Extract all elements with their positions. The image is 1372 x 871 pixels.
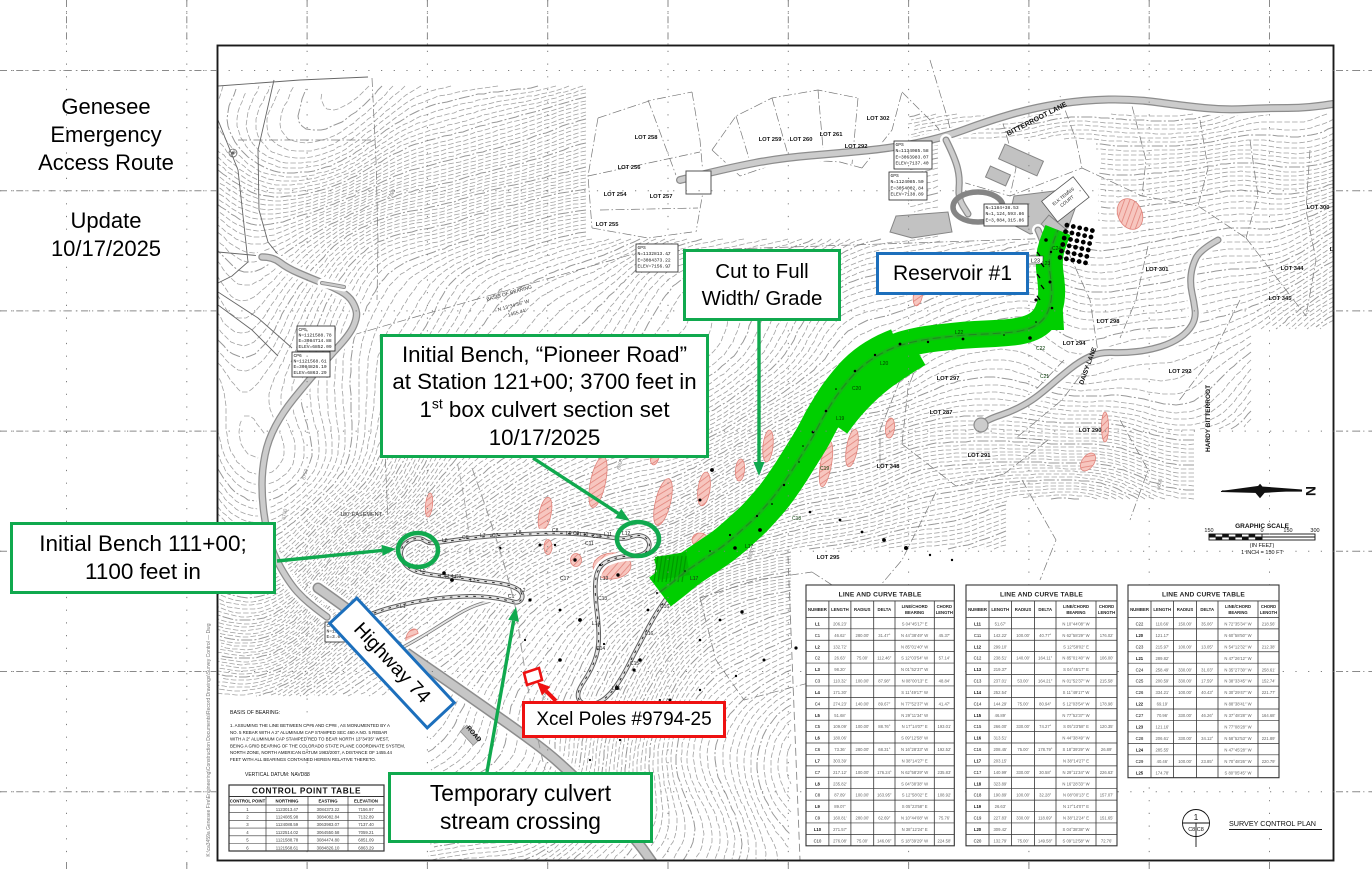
- svg-text:203.15′: 203.15′: [993, 758, 1007, 763]
- svg-text:13.05°: 13.05°: [1201, 644, 1213, 649]
- svg-text:C3: C3: [815, 679, 821, 684]
- svg-text:200.59′: 200.59′: [1155, 679, 1169, 684]
- svg-text:190.89′: 190.89′: [993, 793, 1007, 798]
- svg-text:S 18°39′29″ W: S 18°39′29″ W: [901, 838, 928, 843]
- svg-text:C14: C14: [974, 701, 982, 706]
- svg-text:NORTH ZONE, NORTH AMERICAN DAT: NORTH ZONE, NORTH AMERICAN DATUM 1983/20…: [230, 750, 392, 755]
- svg-text:N 16°28′33″ W: N 16°28′33″ W: [1062, 781, 1089, 786]
- svg-text:1122514.02: 1122514.02: [276, 830, 299, 835]
- svg-text:75.00′: 75.00′: [1017, 838, 1028, 843]
- svg-text:221.77′: 221.77′: [1262, 690, 1276, 695]
- svg-text:BEING A GRID BEARING OF THE CO: BEING A GRID BEARING OF THE COLORADO STA…: [230, 743, 405, 748]
- svg-text:45.37′: 45.37′: [939, 633, 950, 638]
- svg-text:L17: L17: [974, 758, 982, 763]
- svg-text:3084826.10: 3084826.10: [317, 845, 340, 850]
- svg-text:L16: L16: [974, 736, 982, 741]
- svg-text:HARDY BITTERROOT: HARDY BITTERROOT: [1205, 385, 1212, 452]
- svg-text:C4 L4 C3: C4 L4 C3: [440, 574, 461, 580]
- svg-text:C24: C24: [1052, 246, 1061, 252]
- svg-text:46.89′: 46.89′: [995, 713, 1006, 718]
- svg-text:N=1,124,593.86: N=1,124,593.86: [986, 211, 1025, 217]
- svg-text:N 17°14′07″ E: N 17°14′07″ E: [1063, 804, 1089, 809]
- svg-text:CHORD: CHORD: [1099, 604, 1114, 609]
- svg-text:C11: C11: [974, 633, 982, 638]
- svg-text:178.96′: 178.96′: [1100, 701, 1114, 706]
- svg-text:L22: L22: [955, 330, 964, 336]
- svg-text:C6: C6: [462, 535, 469, 541]
- svg-text:CONTROL POINT TABLE: CONTROL POINT TABLE: [252, 786, 361, 796]
- svg-text:87.89′: 87.89′: [834, 793, 845, 798]
- svg-text:87.98°: 87.98°: [878, 679, 890, 684]
- svg-text:L13: L13: [974, 667, 982, 672]
- svg-text:274.23′: 274.23′: [833, 701, 847, 706]
- svg-text:GPS: GPS: [896, 142, 905, 148]
- svg-text:C13: C13: [974, 679, 982, 684]
- svg-text:100.00′: 100.00′: [856, 793, 870, 798]
- svg-text:BEARING: BEARING: [1066, 610, 1085, 615]
- svg-text:51.67′: 51.67′: [995, 621, 1006, 626]
- svg-text:ELEV=7137.40: ELEV=7137.40: [896, 161, 929, 167]
- svg-text:L23: L23: [1136, 725, 1144, 730]
- svg-text:L9: L9: [815, 804, 821, 809]
- svg-text:L8: L8: [815, 781, 821, 786]
- svg-text:140.00′: 140.00′: [1016, 656, 1030, 661]
- svg-text:C15: C15: [630, 661, 639, 667]
- svg-text:C11: C11: [585, 541, 594, 547]
- svg-text:276.08′: 276.08′: [833, 838, 847, 843]
- svg-text:75.00′: 75.00′: [857, 656, 868, 661]
- svg-text:219.37′: 219.37′: [993, 667, 1007, 672]
- svg-text:LINE AND CURVE TABLE: LINE AND CURVE TABLE: [1162, 591, 1245, 598]
- svg-text:221.89′: 221.89′: [1262, 736, 1276, 741]
- svg-text:ELEV=7138.89: ELEV=7138.89: [891, 192, 924, 198]
- svg-text:BEARING: BEARING: [1228, 610, 1247, 615]
- svg-text:C17: C17: [560, 576, 569, 582]
- svg-text:110.66′: 110.66′: [1156, 621, 1169, 626]
- svg-text:C10: C10: [814, 838, 822, 843]
- svg-text:ELEV=7156.97: ELEV=7156.97: [638, 264, 671, 270]
- svg-text:VERTICAL DATUM: NAVD88: VERTICAL DATUM: NAVD88: [245, 772, 310, 778]
- svg-text:3084373.22: 3084373.22: [317, 807, 340, 812]
- svg-text:S 12°03′54″ W: S 12°03′54″ W: [1063, 701, 1090, 706]
- svg-text:26.63′: 26.63′: [995, 804, 1006, 809]
- svg-text:174.78′: 174.78′: [1155, 770, 1169, 775]
- svg-text:LOT 344: LOT 344: [1281, 266, 1305, 272]
- svg-text:LENGTH: LENGTH: [1098, 610, 1115, 615]
- svg-text:N 38°33′45″ W: N 38°33′45″ W: [1224, 679, 1251, 684]
- svg-text:LENGTH: LENGTH: [1260, 610, 1277, 615]
- svg-text:46.62′: 46.62′: [834, 633, 845, 638]
- svg-text:C6: C6: [815, 747, 821, 752]
- svg-text:N 17°14′07″ E: N 17°14′07″ E: [902, 724, 928, 729]
- svg-text:S 05°23′58″ E: S 05°23′58″ E: [1063, 724, 1089, 729]
- svg-text:51.68′: 51.68′: [834, 713, 845, 718]
- svg-text:S 11°49′17″ W: S 11°49′17″ W: [901, 690, 928, 695]
- svg-text:100.00′: 100.00′: [1178, 644, 1192, 649]
- svg-text:LOT 258: LOT 258: [635, 135, 659, 141]
- svg-text:100.00′: 100.00′: [856, 770, 870, 775]
- svg-text:150: 150: [1204, 528, 1213, 534]
- svg-text:K:\ca3459a Genesee Fire\Engine: K:\ca3459a Genesee Fire\Engineering\Cons…: [206, 623, 212, 856]
- svg-text:80.94°: 80.94°: [1039, 701, 1051, 706]
- svg-text:S 12°03′54″ W: S 12°03′54″ W: [901, 656, 928, 661]
- svg-text:6851.09: 6851.09: [358, 838, 374, 843]
- svg-text:171.30′: 171.30′: [833, 690, 847, 695]
- svg-text:WITH A 2″ ALUMINUM CAP STAMPED: WITH A 2″ ALUMINUM CAP STAMPED RED TO BE…: [230, 737, 389, 742]
- svg-text:235.83′: 235.83′: [938, 770, 952, 775]
- svg-text:7132.89: 7132.89: [358, 815, 374, 820]
- svg-text:LINE/CHORD: LINE/CHORD: [1225, 604, 1251, 609]
- svg-text:109.09′: 109.09′: [833, 724, 847, 729]
- svg-text:E=3084826.10: E=3084826.10: [294, 364, 327, 370]
- svg-text:LENGTH: LENGTH: [936, 610, 953, 615]
- svg-text:C16: C16: [974, 747, 982, 752]
- svg-text:N 37°48′28″ W: N 37°48′28″ W: [1224, 713, 1251, 718]
- svg-text:C28: C28: [1136, 736, 1144, 741]
- svg-text:CHORD: CHORD: [937, 604, 952, 609]
- svg-text:70.96′: 70.96′: [1157, 713, 1168, 718]
- svg-text:192.52′: 192.52′: [938, 747, 952, 752]
- svg-text:N 30°29′47″ W: N 30°29′47″ W: [1224, 690, 1251, 695]
- svg-text:N 62°58′29″ W: N 62°58′29″ W: [901, 770, 928, 775]
- svg-text:L14: L14: [592, 621, 601, 627]
- svg-text:DELTA: DELTA: [878, 607, 892, 612]
- svg-text:3084082.84: 3084082.84: [317, 815, 340, 820]
- svg-text:C7: C7: [815, 770, 821, 775]
- svg-text:N 44°38′49″ W: N 44°38′49″ W: [1062, 736, 1089, 741]
- svg-text:7137.40: 7137.40: [358, 822, 374, 827]
- svg-text:L17: L17: [745, 544, 754, 550]
- svg-text:C2: C2: [815, 656, 821, 661]
- svg-text:C18: C18: [792, 516, 801, 522]
- svg-text:LOT 300: LOT 300: [1307, 205, 1330, 211]
- svg-text:C9: C9: [815, 816, 821, 821]
- svg-text:C24: C24: [1136, 667, 1144, 672]
- svg-text:N 35°27′30″ W: N 35°27′30″ W: [1224, 667, 1251, 672]
- svg-text:280.00′: 280.00′: [856, 816, 870, 821]
- svg-text:330.00′: 330.00′: [1178, 736, 1192, 741]
- svg-text:L3: L3: [815, 667, 821, 672]
- svg-text:157.07′: 157.07′: [1100, 793, 1114, 798]
- svg-text:218.56′: 218.56′: [1262, 621, 1276, 626]
- svg-text:S 09°12′58″ W: S 09°12′58″ W: [1063, 838, 1090, 843]
- svg-text:100.00′: 100.00′: [1178, 690, 1192, 695]
- svg-text:E=3084714.88: E=3084714.88: [299, 338, 332, 344]
- svg-text:72.76′: 72.76′: [1101, 838, 1112, 843]
- svg-text:3063983.07: 3063983.07: [317, 822, 340, 827]
- svg-text:280.00′: 280.00′: [856, 633, 870, 638]
- svg-text:L19: L19: [836, 416, 845, 422]
- svg-text:L4: L4: [815, 690, 821, 695]
- svg-text:NORTHING: NORTHING: [276, 799, 300, 804]
- svg-text:75.00′: 75.00′: [1017, 747, 1028, 752]
- svg-text:160.81′: 160.81′: [833, 816, 847, 821]
- svg-text:L5: L5: [815, 713, 821, 718]
- svg-text:L24: L24: [1136, 747, 1144, 752]
- svg-text:98.20′: 98.20′: [834, 667, 845, 672]
- svg-text:151.65′: 151.65′: [1100, 816, 1114, 821]
- svg-text:1. ASSUMING THE LINE BETWEE: 1. ASSUMING THE LINE BETWEEN CP#6 AND CP…: [230, 723, 390, 728]
- svg-text:C8: C8: [552, 528, 559, 534]
- svg-text:N 77°08′28″ W: N 77°08′28″ W: [1224, 725, 1251, 730]
- svg-text:N 62°58′29″ W: N 62°58′29″ W: [1062, 633, 1089, 638]
- svg-text:E=3063983.07: E=3063983.07: [896, 154, 929, 160]
- svg-text:N=1132813.47: N=1132813.47: [638, 251, 671, 257]
- svg-text:100.00′: 100.00′: [856, 679, 870, 684]
- svg-text:35.06°: 35.06°: [1201, 621, 1213, 626]
- svg-text:S 12°58′02″ E: S 12°58′02″ E: [1063, 644, 1089, 649]
- svg-text:DELTA: DELTA: [1200, 607, 1214, 612]
- svg-text:142.22′: 142.22′: [993, 633, 1007, 638]
- svg-text:140.99′: 140.99′: [993, 770, 1007, 775]
- svg-text:LINE AND CURVE TABLE: LINE AND CURVE TABLE: [839, 591, 922, 598]
- svg-text:285.55′: 285.55′: [1155, 747, 1169, 752]
- svg-text:41.47′: 41.47′: [939, 701, 950, 706]
- svg-text:L18: L18: [974, 781, 982, 786]
- svg-text:330.00′: 330.00′: [1178, 679, 1192, 684]
- svg-text:LOT 254: LOT 254: [604, 192, 628, 198]
- svg-text:C22: C22: [1036, 346, 1045, 352]
- svg-text:N 44°38′49″ W: N 44°38′49″ W: [901, 633, 928, 638]
- svg-text:121.16′: 121.16′: [1155, 725, 1169, 730]
- svg-text:N 60°58′50″ W: N 60°58′50″ W: [1224, 633, 1251, 638]
- svg-text:N 77°52′37″ W: N 77°52′37″ W: [901, 701, 928, 706]
- svg-text:227.83′: 227.83′: [993, 816, 1007, 821]
- svg-text:C26: C26: [1136, 690, 1144, 695]
- svg-text:313.51′: 313.51′: [993, 736, 1007, 741]
- svg-text:68.31°: 68.31°: [878, 747, 890, 752]
- svg-text:163.95°: 163.95°: [877, 793, 892, 798]
- svg-text:146.06°: 146.06°: [877, 838, 892, 843]
- svg-text:132.79′: 132.79′: [993, 838, 1007, 843]
- svg-text:334.21′: 334.21′: [1155, 690, 1169, 695]
- svg-text:LOT 261: LOT 261: [820, 132, 844, 138]
- svg-text:L8: L8: [516, 530, 522, 536]
- svg-text:L3: L3: [470, 578, 476, 584]
- svg-text:C25: C25: [1136, 679, 1144, 684]
- svg-text:74.27°: 74.27°: [1039, 724, 1051, 729]
- svg-text:C8: C8: [815, 793, 821, 798]
- svg-text:L9 C9: L9 C9: [566, 531, 580, 537]
- svg-text:100.00′: 100.00′: [1016, 793, 1030, 798]
- svg-text:S 05°23′58″ E: S 05°23′58″ E: [902, 804, 928, 809]
- svg-text:40.77°: 40.77°: [1039, 633, 1051, 638]
- svg-text:N 01°52′37″ W: N 01°52′37″ W: [1062, 679, 1089, 684]
- svg-text:E=3054002.84: E=3054002.84: [891, 185, 924, 191]
- svg-text:226.63′: 226.63′: [1100, 770, 1114, 775]
- svg-text:N 38°14′27″ E: N 38°14′27″ E: [1063, 758, 1089, 763]
- svg-text:132.72′: 132.72′: [833, 644, 847, 649]
- svg-text:150.00′: 150.00′: [1178, 621, 1192, 626]
- svg-text:L12: L12: [974, 644, 982, 649]
- svg-text:NO. 5 REBAR WITH A 2″ ALUMINUM: NO. 5 REBAR WITH A 2″ ALUMINUM CAP STAMP…: [230, 730, 387, 735]
- svg-text:112.46°: 112.46°: [877, 656, 891, 661]
- svg-text:RADIUS: RADIUS: [854, 607, 871, 612]
- svg-text:1121568.61: 1121568.61: [276, 845, 299, 850]
- svg-text:C23: C23: [1136, 644, 1144, 649]
- svg-text:N 38°12′24″ E: N 38°12′24″ E: [1063, 816, 1089, 821]
- svg-text:L6: L6: [815, 736, 821, 741]
- svg-text:C15: C15: [974, 724, 982, 729]
- svg-text:89.07′: 89.07′: [834, 804, 845, 809]
- svg-text:C4: C4: [815, 701, 821, 706]
- svg-text:LINE/CHORD: LINE/CHORD: [902, 604, 928, 609]
- svg-text:C12: C12: [974, 656, 982, 661]
- svg-text:LOT 259: LOT 259: [759, 137, 783, 143]
- svg-text:176.24°: 176.24°: [877, 770, 892, 775]
- svg-text:215.58′: 215.58′: [1100, 679, 1114, 684]
- svg-text:258.49′: 258.49′: [1155, 667, 1169, 672]
- svg-text:L1: L1: [815, 621, 821, 626]
- svg-text:LOT 291: LOT 291: [968, 453, 992, 459]
- svg-text:L25: L25: [1136, 770, 1144, 775]
- svg-text:LOT 348: LOT 348: [877, 464, 901, 470]
- svg-text:LENGTH: LENGTH: [831, 607, 849, 612]
- svg-text:164.21°: 164.21°: [1038, 679, 1053, 684]
- svg-text:N=1121588.78: N=1121588.78: [299, 333, 332, 339]
- svg-text:LOT 287: LOT 287: [930, 410, 953, 416]
- svg-text:309.42′: 309.42′: [993, 827, 1007, 832]
- svg-text:L23: L23: [1031, 259, 1040, 265]
- svg-text:300: 300: [1310, 528, 1319, 534]
- svg-text:C1: C1: [815, 633, 821, 638]
- svg-text:N 08°00′13″ E: N 08°00′13″ E: [1063, 793, 1089, 798]
- svg-text:176.02′: 176.02′: [1100, 633, 1114, 638]
- svg-text:LOT 294: LOT 294: [1063, 341, 1087, 347]
- svg-text:C29: C29: [1136, 759, 1144, 764]
- svg-text:LOT 292: LOT 292: [845, 144, 868, 150]
- svg-text:89.67°: 89.67°: [878, 701, 890, 706]
- svg-text:N=1121568.61: N=1121568.61: [294, 359, 327, 365]
- svg-text:C1: C1: [508, 594, 515, 600]
- svg-text:LOT 260: LOT 260: [790, 137, 813, 143]
- svg-text:330.00′: 330.00′: [1016, 724, 1030, 729]
- svg-text:S 04°38′38″ W: S 04°38′38″ W: [1063, 827, 1090, 832]
- svg-text:L19: L19: [974, 804, 982, 809]
- svg-text:40.46′: 40.46′: [1157, 759, 1168, 764]
- svg-text:L22: L22: [1136, 702, 1144, 707]
- svg-text:S 04°45′17″ E: S 04°45′17″ E: [902, 621, 928, 626]
- svg-text:31.47°: 31.47°: [878, 633, 890, 638]
- svg-text:3084474.80: 3084474.80: [317, 838, 340, 843]
- svg-text:C20: C20: [974, 838, 982, 843]
- svg-text:C19: C19: [974, 816, 982, 821]
- svg-text:26.89′: 26.89′: [1101, 747, 1112, 752]
- svg-text:34.12°: 34.12°: [1201, 736, 1213, 741]
- svg-text:108.92′: 108.92′: [938, 793, 952, 798]
- svg-text:S 04°38′38″ W: S 04°38′38″ W: [901, 781, 928, 786]
- svg-text:C27: C27: [1136, 713, 1144, 718]
- svg-text:C8 C8: C8 C8: [1188, 827, 1204, 833]
- svg-text:NUMBER: NUMBER: [1130, 607, 1150, 612]
- svg-text:NUMBER: NUMBER: [968, 607, 988, 612]
- svg-text:215.97′: 215.97′: [1155, 644, 1169, 649]
- svg-text:N 29°11′34″ W: N 29°11′34″ W: [1063, 770, 1090, 775]
- svg-text:LOT 298: LOT 298: [1097, 319, 1121, 325]
- svg-text:L7: L7: [815, 758, 821, 763]
- svg-text:62.69°: 62.69°: [878, 816, 890, 821]
- svg-text:L20: L20: [1136, 633, 1144, 638]
- svg-text:LOT 345: LOT 345: [1269, 296, 1293, 302]
- svg-text:N 38°14′27″ E: N 38°14′27″ E: [902, 758, 928, 763]
- svg-text:1124085.98: 1124085.98: [276, 815, 299, 820]
- svg-text:N 70°48′26″ W: N 70°48′26″ W: [1224, 759, 1251, 764]
- svg-text:DELTA: DELTA: [1038, 607, 1052, 612]
- svg-text:271.57′: 271.57′: [833, 827, 847, 832]
- svg-text:L6: L6: [442, 538, 448, 544]
- svg-text:N=1184+38.53: N=1184+38.53: [986, 205, 1019, 211]
- svg-text:220.79′: 220.79′: [1262, 759, 1276, 764]
- svg-text:E=3084373.22: E=3084373.22: [638, 257, 671, 263]
- svg-text:330.00′: 330.00′: [1016, 816, 1030, 821]
- svg-text:1124088.59: 1124088.59: [276, 822, 299, 827]
- svg-text:L17: L17: [690, 576, 699, 582]
- svg-text:206.61′: 206.61′: [1155, 736, 1169, 741]
- svg-text:C14: C14: [596, 646, 605, 652]
- svg-text:1123013.47: 1123013.47: [276, 807, 299, 812]
- svg-text:206.23′: 206.23′: [833, 621, 847, 626]
- svg-text:N 54°12′32″ W: N 54°12′32″ W: [1224, 644, 1251, 649]
- svg-text:L21: L21: [1136, 656, 1144, 661]
- svg-text:238.51′: 238.51′: [993, 656, 1007, 661]
- svg-text:L12: L12: [622, 531, 631, 537]
- svg-text:L10: L10: [580, 532, 589, 538]
- svg-text:180.06′: 180.06′: [833, 736, 847, 741]
- svg-text:30.58°: 30.58°: [1039, 770, 1051, 775]
- svg-text:75.00′: 75.00′: [857, 838, 868, 843]
- svg-text:C13: C13: [598, 596, 607, 602]
- svg-text:0: 0: [1260, 528, 1263, 534]
- svg-text:GPS: GPS: [638, 245, 647, 251]
- svg-text:208.45′: 208.45′: [993, 747, 1007, 752]
- svg-text:LENGTH: LENGTH: [1153, 607, 1171, 612]
- svg-text:17.59°: 17.59°: [1201, 679, 1213, 684]
- svg-text:N 38°12′24″ E: N 38°12′24″ E: [902, 827, 928, 832]
- svg-text:164.68′: 164.68′: [1262, 713, 1276, 718]
- svg-text:150: 150: [1283, 528, 1292, 534]
- svg-text:LINE AND CURVE TABLE: LINE AND CURVE TABLE: [1000, 591, 1083, 598]
- svg-text:73.36′: 73.36′: [834, 747, 845, 752]
- svg-text:LOT 290: LOT 290: [1079, 428, 1102, 434]
- svg-text:N 47°45′28″ W: N 47°45′28″ W: [1224, 747, 1251, 752]
- svg-text:BEARING: BEARING: [905, 610, 924, 615]
- svg-text:7156.97: 7156.97: [358, 807, 374, 812]
- svg-text:N 85°01′40″ W: N 85°01′40″ W: [1062, 656, 1089, 661]
- svg-text:C18: C18: [974, 793, 982, 798]
- svg-text:6863.29: 6863.29: [358, 845, 374, 850]
- svg-text:C22: C22: [1136, 621, 1144, 626]
- svg-text:N: N: [1303, 486, 1319, 496]
- svg-text:23.85°: 23.85°: [1201, 759, 1213, 764]
- svg-text:FEET WITH ALL BEARINGS CONTAIN: FEET WITH ALL BEARINGS CONTAINED HEREIN …: [230, 757, 376, 762]
- svg-text:L13: L13: [600, 576, 609, 582]
- svg-text:(IN FEET): (IN FEET): [1250, 543, 1275, 549]
- svg-text:N 58°52′53″ W: N 58°52′53″ W: [1224, 736, 1251, 741]
- svg-text:L20: L20: [974, 827, 982, 832]
- svg-text:SURVEY CONTROL PLAN: SURVEY CONTROL PLAN: [1229, 819, 1316, 828]
- svg-text:L2: L2: [520, 588, 526, 594]
- svg-text:S 12°58′02″ E: S 12°58′02″ E: [902, 793, 928, 798]
- svg-text:100.00′: 100.00′: [856, 724, 870, 729]
- svg-text:EASTING: EASTING: [318, 799, 338, 804]
- svg-text:L7: L7: [480, 533, 486, 539]
- svg-text:ELEVATION: ELEVATION: [354, 799, 378, 804]
- svg-text:N 10°44′08″ W: N 10°44′08″ W: [1062, 621, 1089, 626]
- svg-text:N 72°35′34″ W: N 72°35′34″ W: [1224, 621, 1251, 626]
- svg-text:L15: L15: [974, 713, 982, 718]
- svg-text:330.00′: 330.00′: [1016, 770, 1030, 775]
- svg-text:L20: L20: [880, 361, 889, 367]
